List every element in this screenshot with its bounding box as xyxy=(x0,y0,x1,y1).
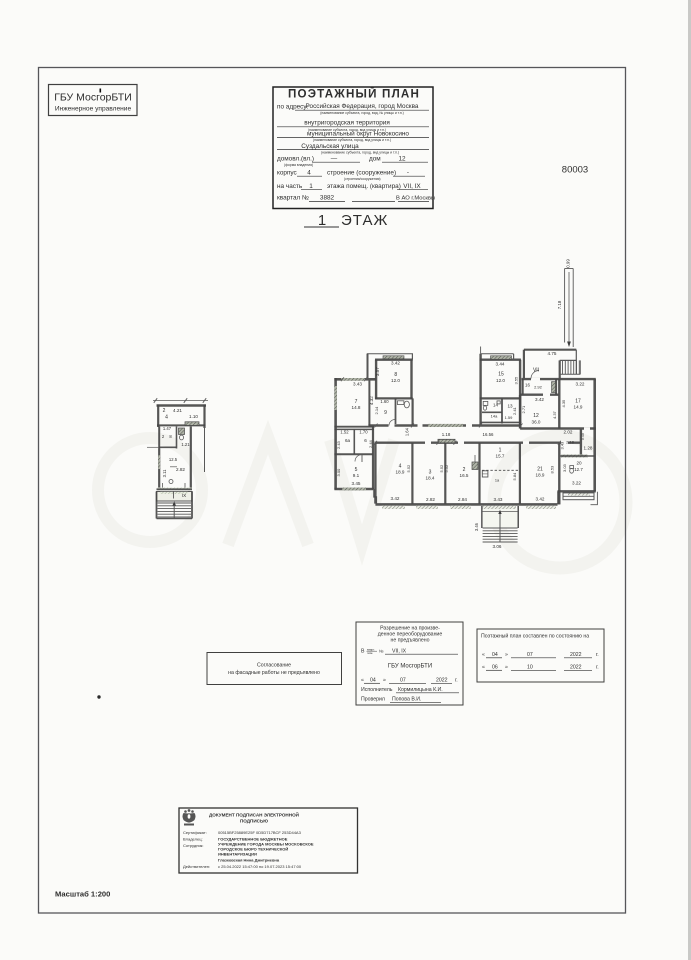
svg-text:В: В xyxy=(361,649,365,655)
svg-text:В АО г.Москвы: В АО г.Москвы xyxy=(396,196,435,202)
svg-text:3.43: 3.43 xyxy=(353,382,362,387)
svg-text:4.21: 4.21 xyxy=(173,408,182,413)
svg-text:Суздальская улица: Суздальская улица xyxy=(301,143,359,150)
svg-text:(форма владения): (форма владения) xyxy=(284,163,313,167)
svg-text:4: 4 xyxy=(165,415,168,421)
svg-text:3.42: 3.42 xyxy=(391,496,400,501)
svg-text:строение (сооружение): строение (сооружение) xyxy=(327,169,396,176)
svg-text:г.: г. xyxy=(596,665,599,671)
svg-text:15: 15 xyxy=(498,372,504,378)
svg-text:2022: 2022 xyxy=(570,652,582,658)
svg-text:1.64: 1.64 xyxy=(405,427,410,436)
svg-text:1.52: 1.52 xyxy=(340,429,349,434)
svg-text:№: № xyxy=(379,649,383,654)
svg-text:14.8: 14.8 xyxy=(352,405,361,410)
svg-text:3.03: 3.03 xyxy=(562,463,567,472)
svg-text:7.18: 7.18 xyxy=(557,300,562,309)
svg-text:0.40: 0.40 xyxy=(581,433,585,440)
svg-text:2.84: 2.84 xyxy=(458,497,467,502)
svg-text:3.43: 3.43 xyxy=(494,497,503,502)
svg-text:1.47: 1.47 xyxy=(163,426,172,431)
svg-text:—: — xyxy=(331,155,338,162)
svg-text:Кормилицына К.И.: Кормилицына К.И. xyxy=(398,687,443,693)
svg-text:3.44: 3.44 xyxy=(496,362,505,367)
svg-text:с 25.04.2022 15:47:00 по 19.07: с 25.04.2022 15:47:00 по 19.07.2023 15:4… xyxy=(218,864,302,869)
svg-text:3.42: 3.42 xyxy=(536,496,545,501)
svg-text:Попова В.И.: Попова В.И. xyxy=(392,697,421,703)
svg-text:ГБУ МосгорБТИ: ГБУ МосгорБТИ xyxy=(388,664,432,670)
svg-text:1.21: 1.21 xyxy=(181,442,190,447)
svg-text:36.0: 36.0 xyxy=(532,420,541,425)
svg-text:6а: 6а xyxy=(345,438,351,443)
svg-text:10: 10 xyxy=(527,665,533,671)
svg-text:Действителен:: Действителен: xyxy=(183,864,210,869)
svg-text:на часть: на часть xyxy=(277,183,303,190)
svg-text:14а: 14а xyxy=(491,414,498,419)
svg-text:»: » xyxy=(383,678,386,684)
svg-text:Сертификат:: Сертификат: xyxy=(183,830,207,835)
svg-text:16: 16 xyxy=(525,383,530,388)
svg-text:3.46: 3.46 xyxy=(474,522,479,531)
svg-text:2022: 2022 xyxy=(570,665,582,671)
svg-text:VII: VII xyxy=(533,367,539,373)
svg-text:Глазковская Нина Дмитриевна: Глазковская Нина Дмитриевна xyxy=(218,858,280,863)
svg-text:00515ВF25889Е25F 0D5D717ВСF 25: 00515ВF25889Е25F 0D5D717ВСF 253D44А3 xyxy=(218,830,302,835)
svg-text:ИНВЕНТАРИЗАЦИИ: ИНВЕНТАРИЗАЦИИ xyxy=(218,852,257,857)
svg-text:квартал №: квартал № xyxy=(277,195,309,202)
svg-text:VII, IX: VII, IX xyxy=(392,649,407,655)
svg-text:Исполнитель: Исполнитель xyxy=(361,687,393,693)
svg-text:домовл.(вл.): домовл.(вл.) xyxy=(277,155,314,162)
svg-text:2.14: 2.14 xyxy=(374,406,379,415)
svg-text:по адресу:: по адресу: xyxy=(277,104,309,111)
svg-text:корпус: корпус xyxy=(277,169,298,176)
svg-text:3.06: 3.06 xyxy=(493,544,502,549)
svg-text:1.28: 1.28 xyxy=(584,446,593,451)
svg-text:Российская Федерация, город Мо: Российская Федерация, город Москва xyxy=(306,102,419,110)
svg-text:9.1: 9.1 xyxy=(353,473,360,478)
svg-text:(строения/сооружения): (строения/сооружения) xyxy=(344,177,381,181)
svg-text:8.53: 8.53 xyxy=(549,465,554,474)
svg-text:ГБУ МосгорБТИ: ГБУ МосгорБТИ xyxy=(54,92,132,104)
svg-text:2.71: 2.71 xyxy=(521,405,526,414)
svg-text:12.0: 12.0 xyxy=(391,378,400,383)
svg-text:Согласование: Согласование xyxy=(257,663,291,669)
svg-text:на фасадные работы не предъявл: на фасадные работы не предъявлено xyxy=(228,670,320,676)
svg-text:18.9: 18.9 xyxy=(536,473,545,478)
svg-text:1.18: 1.18 xyxy=(442,432,451,437)
svg-text:2.82: 2.82 xyxy=(426,497,435,502)
svg-text:этажа помещ. (квартира): этажа помещ. (квартира) xyxy=(327,183,401,190)
svg-text:-: - xyxy=(407,169,409,176)
svg-text:1.10: 1.10 xyxy=(189,414,198,419)
svg-text:4.37: 4.37 xyxy=(552,410,557,419)
svg-text:3.45: 3.45 xyxy=(352,481,361,486)
svg-text:2.41: 2.41 xyxy=(512,406,517,415)
svg-text:Инженерное управление: Инженерное управление xyxy=(55,106,132,113)
svg-text:1.60: 1.60 xyxy=(380,399,389,404)
svg-text:5.52: 5.52 xyxy=(406,464,411,473)
svg-text:»: » xyxy=(505,652,508,658)
svg-text:3882: 3882 xyxy=(320,195,335,202)
svg-text:20: 20 xyxy=(576,461,582,466)
svg-text:4: 4 xyxy=(307,169,311,176)
svg-text:1.70: 1.70 xyxy=(359,429,368,434)
svg-text:2.18: 2.18 xyxy=(566,439,575,444)
svg-text:(наименование субъекта, город,: (наименование субъекта, город, вид, № ул… xyxy=(320,111,404,115)
svg-text:2: 2 xyxy=(163,408,166,414)
svg-text:2.02: 2.02 xyxy=(564,430,573,435)
svg-text:«: « xyxy=(482,652,485,658)
svg-text:пом.: пом. xyxy=(367,651,373,655)
svg-text:04: 04 xyxy=(370,678,376,684)
svg-text:14: 14 xyxy=(493,403,498,408)
svg-text:80003: 80003 xyxy=(562,165,588,176)
svg-text:16.56: 16.56 xyxy=(483,432,495,437)
svg-text:4.32: 4.32 xyxy=(369,396,374,405)
svg-text:муниципальный округ Новокосино: муниципальный округ Новокосино xyxy=(307,130,409,138)
svg-text:12.5: 12.5 xyxy=(169,457,178,462)
svg-text:VII, IX: VII, IX xyxy=(403,183,421,190)
svg-text:15.7: 15.7 xyxy=(496,454,505,459)
svg-text:ПОДПИСЬЮ: ПОДПИСЬЮ xyxy=(240,819,268,824)
svg-text:3.55: 3.55 xyxy=(513,376,518,385)
svg-text:не предъявлено: не предъявлено xyxy=(391,638,430,644)
svg-text:18.9: 18.9 xyxy=(396,470,405,475)
svg-text:2022: 2022 xyxy=(436,678,448,684)
svg-text:»: » xyxy=(505,665,508,671)
svg-text:Сотрудник:: Сотрудник: xyxy=(183,843,204,848)
svg-text:07: 07 xyxy=(400,678,406,684)
svg-text:3.22: 3.22 xyxy=(576,381,585,386)
svg-text:дом: дом xyxy=(369,155,381,162)
svg-text:3.57: 3.57 xyxy=(375,367,380,376)
svg-text:9: 9 xyxy=(384,410,387,416)
svg-text:г.: г. xyxy=(596,652,599,658)
svg-text:(наименование субъекта, город,: (наименование субъекта, город, вид улицы… xyxy=(321,150,399,154)
svg-text:Масштаб 1:200: Масштаб 1:200 xyxy=(55,890,110,899)
svg-text:3.43: 3.43 xyxy=(560,441,565,450)
svg-text:3.42: 3.42 xyxy=(391,360,400,365)
svg-text:16.5: 16.5 xyxy=(460,473,469,478)
svg-text:18.4: 18.4 xyxy=(426,476,435,481)
svg-text:Владелец:: Владелец: xyxy=(183,837,203,842)
svg-text:Проверил: Проверил xyxy=(361,697,385,703)
svg-text:3.11: 3.11 xyxy=(162,469,167,478)
svg-text:14.9: 14.9 xyxy=(574,405,583,410)
svg-text:5.84: 5.84 xyxy=(512,472,517,481)
svg-text:2.82: 2.82 xyxy=(176,467,185,472)
svg-text:2.92: 2.92 xyxy=(534,385,543,390)
svg-text:04: 04 xyxy=(492,652,498,658)
svg-text:Поэтажный план составлен по со: Поэтажный план составлен по состоянию на xyxy=(481,633,589,640)
svg-text:06: 06 xyxy=(492,665,498,671)
svg-text:внутригородская территория: внутригородская территория xyxy=(304,120,390,127)
svg-text:6: 6 xyxy=(364,438,367,443)
svg-text:ДОКУМЕНТ ПОДПИСАН ЭЛЕКТРОННОЙ: ДОКУМЕНТ ПОДПИСАН ЭЛЕКТРОННОЙ xyxy=(209,811,299,818)
svg-text:1: 1 xyxy=(309,183,313,190)
svg-text:5.52: 5.52 xyxy=(444,464,449,473)
svg-text:«: « xyxy=(361,678,364,684)
svg-text:2.43: 2.43 xyxy=(336,440,341,449)
svg-text:ПОЭТАЖНЫЙ ПЛАН: ПОЭТАЖНЫЙ ПЛАН xyxy=(288,88,420,101)
svg-text:3.00: 3.00 xyxy=(336,468,341,477)
svg-text:12: 12 xyxy=(398,155,406,162)
svg-text:4.75: 4.75 xyxy=(548,351,557,356)
svg-text:IX: IX xyxy=(182,493,186,498)
svg-text:г.: г. xyxy=(455,678,458,684)
svg-text:12.0: 12.0 xyxy=(496,378,505,383)
svg-text:ЭТАЖ: ЭТАЖ xyxy=(341,212,388,229)
svg-text:0.99: 0.99 xyxy=(566,259,571,268)
svg-text:12: 12 xyxy=(533,413,539,419)
svg-text:«: « xyxy=(482,665,485,671)
svg-text:4.35: 4.35 xyxy=(561,399,566,408)
svg-text:(наименование субъекта, город,: (наименование субъекта, город, вид улицы… xyxy=(313,138,391,142)
svg-text:3.22: 3.22 xyxy=(572,481,581,486)
svg-text:12.7: 12.7 xyxy=(574,467,583,472)
svg-text:3.42: 3.42 xyxy=(535,397,544,402)
svg-text:2.44: 2.44 xyxy=(368,439,373,448)
svg-text:07: 07 xyxy=(527,652,533,658)
